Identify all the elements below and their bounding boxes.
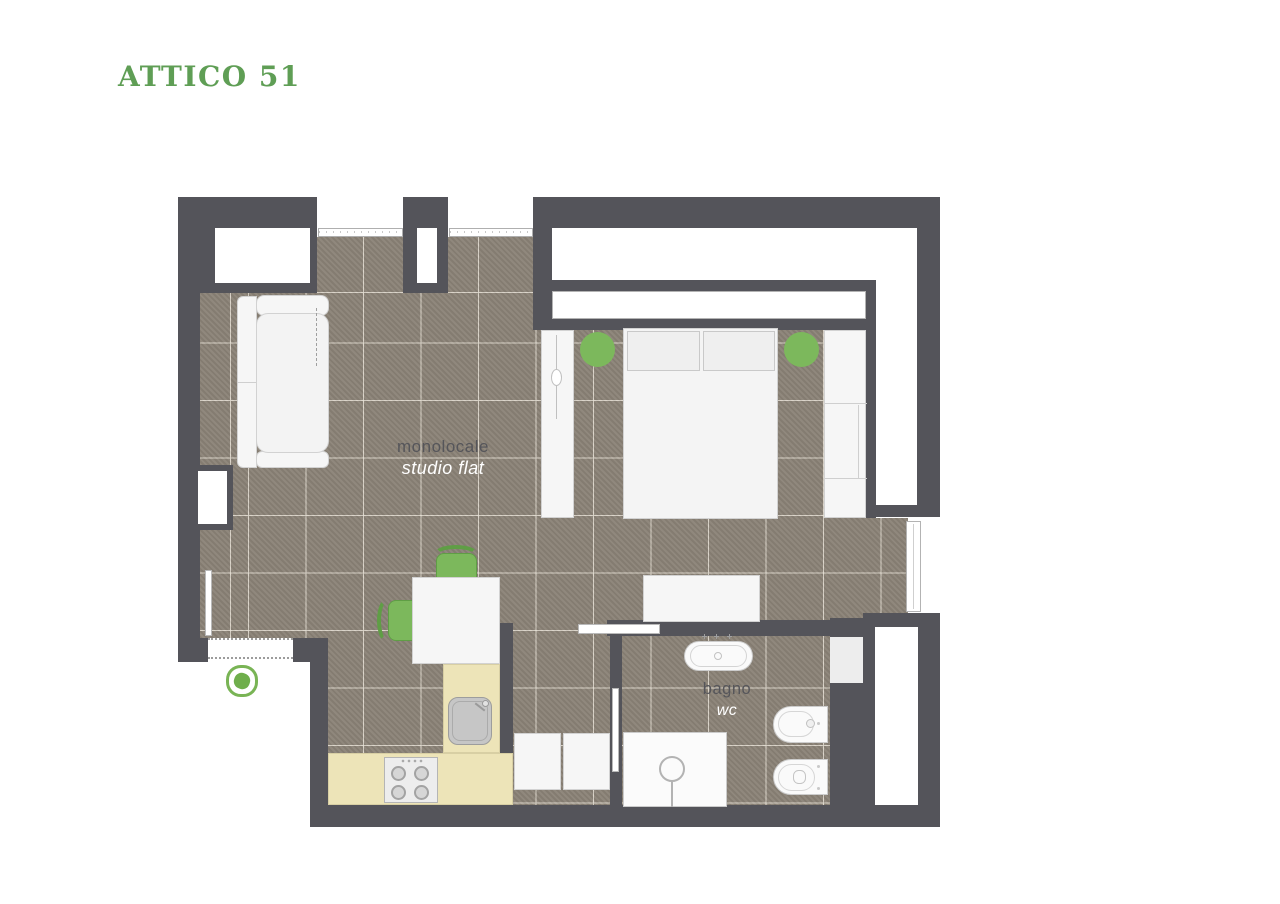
entrance-door-icon <box>205 570 212 636</box>
tap-icon <box>727 634 732 639</box>
wardrobe-icon <box>824 330 866 518</box>
shower-drain-line <box>671 781 673 807</box>
wardrobe-door-line <box>858 405 859 478</box>
washbasin-icon <box>684 641 753 671</box>
room-label-bathroom-en: wc <box>637 702 817 720</box>
pillow-icon <box>627 331 700 371</box>
burner <box>414 766 429 781</box>
laundry-cabinet-icon <box>514 733 561 790</box>
wall-kitchen-left <box>310 640 328 827</box>
wall-bottom <box>310 805 940 827</box>
wall-entry-stub-right <box>293 638 328 662</box>
closet-icon <box>541 330 574 518</box>
page-title: ATTICO 51 <box>118 60 301 93</box>
burner <box>414 785 429 800</box>
wardrobe-shelf-line <box>825 478 867 479</box>
wall-niche-pillar <box>417 228 437 283</box>
toilet-icon <box>773 759 828 795</box>
bedroom-window-band-icon <box>552 291 866 319</box>
burner <box>391 785 406 800</box>
sofa-bed-extension-dashes <box>316 308 318 366</box>
faucet-icon <box>482 700 489 707</box>
hob-icon <box>384 757 438 803</box>
shower-icon <box>623 732 727 807</box>
wall-left <box>178 197 200 662</box>
toilet-dot <box>817 765 820 768</box>
hob-knobs <box>400 759 424 763</box>
wall-niche-top-left <box>215 228 310 283</box>
sofa-back-seam <box>237 382 257 383</box>
laundry-cabinet-icon <box>563 733 610 790</box>
wall-balcony-vertical <box>866 280 876 518</box>
wardrobe-shelf-line <box>825 403 867 404</box>
wall-niche-left <box>198 471 227 524</box>
tap-icon <box>714 634 719 639</box>
bidet-dot <box>817 722 820 725</box>
kitchen-sink-icon <box>448 697 492 745</box>
room-label-bathroom-it: bagno <box>637 680 817 699</box>
entrance-opening-dashed <box>208 638 293 659</box>
bidet-faucet <box>806 719 815 728</box>
side-window-icon <box>906 521 921 612</box>
wall-balcony-band-top <box>542 280 875 291</box>
shower-drain <box>659 756 685 782</box>
toilet-hole <box>793 770 806 784</box>
tap-icon <box>702 634 707 639</box>
dining-table-icon <box>412 577 500 664</box>
window-icon <box>318 228 403 237</box>
burner <box>391 766 406 781</box>
bathroom-wall-niche <box>830 637 863 683</box>
sofa-armrest <box>256 451 329 468</box>
floor-plan-page: ATTICO 51 <box>0 0 1280 904</box>
toilet-dot <box>817 787 820 790</box>
wall-terrace-divider <box>533 197 552 330</box>
room-label-studio-it: monolocale <box>353 437 533 457</box>
wall-right-upper <box>917 197 940 517</box>
pillow-icon <box>703 331 775 371</box>
wall-right-lower <box>918 613 940 827</box>
bedside-stool-icon <box>580 332 615 367</box>
sliding-door-icon <box>612 688 619 772</box>
room-label-studio-en: studio flat <box>353 458 533 479</box>
sofa-seat-cushion <box>256 313 329 453</box>
wall-top-right <box>533 197 940 228</box>
door-handle-icon <box>551 369 562 386</box>
window-icon <box>449 228 533 237</box>
sliding-door-icon <box>578 624 660 634</box>
bedside-stool-icon <box>784 332 819 367</box>
wall-right-corner-mid <box>866 505 940 517</box>
wall-entry-stub-left <box>178 638 208 662</box>
washbasin-drain <box>714 652 722 660</box>
dresser-icon <box>643 575 760 622</box>
